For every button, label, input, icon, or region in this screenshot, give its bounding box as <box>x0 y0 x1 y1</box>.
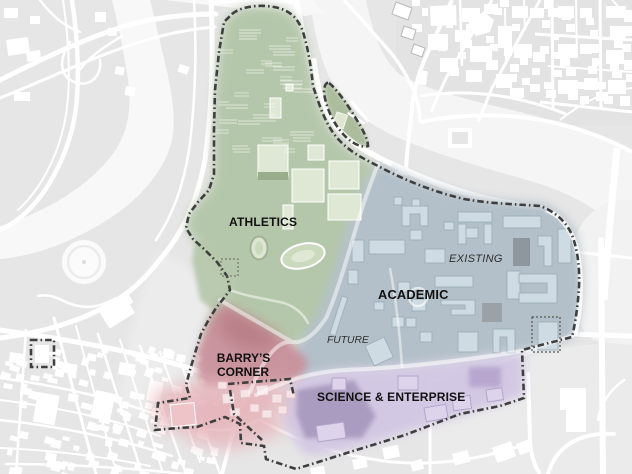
svg-text:CORNER: CORNER <box>217 365 269 379</box>
svg-text:ACADEMIC: ACADEMIC <box>378 287 449 302</box>
svg-text:EXISTING: EXISTING <box>449 253 503 265</box>
svg-text:ATHLETICS: ATHLETICS <box>229 215 297 229</box>
svg-text:FUTURE: FUTURE <box>327 335 369 346</box>
svg-text:BARRY’S: BARRY’S <box>217 351 271 365</box>
svg-text:SCIENCE & ENTERPRISE: SCIENCE & ENTERPRISE <box>317 390 465 404</box>
